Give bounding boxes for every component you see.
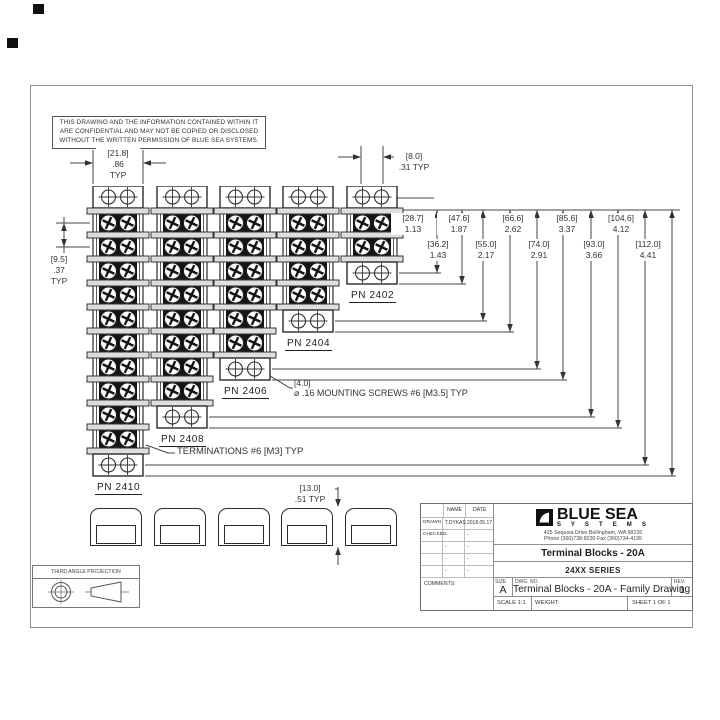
- dim-terminal-pitch: [9.5] .37 TYP: [42, 254, 76, 286]
- side-view-base: [287, 525, 327, 544]
- dim-in: 3.66: [572, 250, 616, 261]
- approval-cell: -: [443, 566, 465, 577]
- dim-in: 2.62: [491, 224, 535, 235]
- approval-cell: [421, 566, 443, 577]
- approval-cell: -: [465, 542, 493, 553]
- approval-cell: -: [465, 530, 493, 541]
- title-block: NAME DATE DRAWNT.DYKAS2018.05.17CHECKED-…: [420, 503, 693, 611]
- dim-ladder-label: [85.6]3.37: [545, 213, 589, 235]
- pn-label: PN 2404: [285, 338, 332, 351]
- approval-row: --: [421, 554, 493, 566]
- company-sub: S Y S T E M S: [557, 522, 650, 528]
- terminal-block-pn-2402: [340, 186, 404, 286]
- blue-sea-logo-icon: [536, 509, 553, 526]
- dim-mm: [36.2]: [416, 239, 460, 250]
- dim-ladder-label: [28.7]1.13: [391, 213, 435, 235]
- dim-ladder-label: [104.6]4.12: [599, 213, 643, 235]
- projection-label: THIRD ANGLE PROJECTION: [33, 566, 139, 579]
- size-value: A: [494, 584, 512, 596]
- dim-in: 1.87: [437, 224, 481, 235]
- pn-label: PN 2406: [222, 386, 269, 399]
- dim-mm: [85.6]: [545, 213, 589, 224]
- dim-mm: [104.6]: [599, 213, 643, 224]
- approval-cell: -: [443, 554, 465, 565]
- sheet-value: SHEET 1 OF 1: [628, 597, 692, 610]
- dim-mm: [47.6]: [437, 213, 481, 224]
- side-view-profile: [281, 508, 333, 546]
- pn-label: PN 2410: [95, 482, 142, 495]
- dim-in: 2.91: [517, 250, 561, 261]
- dim-ladder-label: [74.0]2.91: [517, 239, 561, 261]
- dim-block-width: [21.8] .86 TYP: [96, 148, 140, 180]
- dim-in: 1.13: [391, 224, 435, 235]
- weight-label: WEIGHT:: [532, 597, 628, 610]
- dwg-label: DWG. NO.: [515, 579, 539, 585]
- approval-cell: -: [443, 530, 465, 541]
- projection-box: THIRD ANGLE PROJECTION: [32, 565, 140, 608]
- side-view-base: [160, 525, 200, 544]
- company-phone: Phone (360)738-8230 Fax (360)734-4195: [494, 536, 692, 542]
- approval-row: --: [421, 566, 493, 578]
- note-mounting-dim: [4.0]: [294, 378, 468, 388]
- pn-label: PN 2402: [349, 290, 396, 303]
- approval-cell: -: [465, 566, 493, 577]
- dim-in: 1.43: [416, 250, 460, 261]
- dim-mm: [112.0]: [626, 239, 670, 250]
- rev-value: 1: [672, 584, 692, 596]
- pn-label: PN 2408: [159, 434, 206, 447]
- side-view-base: [224, 525, 264, 544]
- dim-mm: [66.6]: [491, 213, 535, 224]
- dim-mm: [93.0]: [572, 239, 616, 250]
- note-mounting-screws: [4.0] ⌀ .16 MOUNTING SCREWS #6 [M3.5] TY…: [294, 378, 468, 399]
- company-name: BLUE SEA: [557, 507, 650, 522]
- approval-cell: -: [465, 554, 493, 565]
- approval-row: --: [421, 542, 493, 554]
- approval-cell: 2018.05.17: [465, 518, 493, 529]
- dim-ladder-label: [55.0]2.17: [464, 239, 508, 261]
- projection-symbol: [33, 579, 137, 606]
- approval-cell: -: [443, 542, 465, 553]
- side-view-base: [351, 525, 391, 544]
- col-header-date: DATE: [466, 504, 493, 517]
- rev-label: REV.: [674, 579, 685, 585]
- dim-in: 4.12: [599, 224, 643, 235]
- side-view-base: [96, 525, 136, 544]
- side-view-profile: [218, 508, 270, 546]
- dim-ladder-label: [36.2]1.43: [416, 239, 460, 261]
- dim-mm: [74.0]: [517, 239, 561, 250]
- dim-mm: [55.0]: [464, 239, 508, 250]
- approval-rows: DRAWNT.DYKAS2018.05.17CHECKED--------: [421, 518, 493, 578]
- terminal-block-pn-2408: [150, 186, 214, 430]
- comments-label: COMMENTS:: [421, 578, 493, 587]
- scale-value: SCALE 1:1: [494, 597, 532, 610]
- approval-cell: [421, 542, 443, 553]
- col-header-name: NAME: [444, 504, 467, 517]
- size-label: SIZE: [495, 579, 506, 585]
- approval-row: DRAWNT.DYKAS2018.05.17: [421, 518, 493, 530]
- dim-mm: [28.7]: [391, 213, 435, 224]
- dim-ladder-label: [112.0]4.41: [626, 239, 670, 261]
- dwg-number: Terminal Blocks - 20A - Family Drawing: [513, 584, 671, 595]
- approval-cell: T.DYKAS: [443, 518, 465, 529]
- approval-cell: CHECKED: [421, 530, 443, 541]
- side-view-profile: [345, 508, 397, 546]
- terminal-block-pn-2410: [86, 186, 150, 478]
- terminal-block-pn-2406: [213, 186, 277, 382]
- note-terminations: TERMINATIONS #6 [M3] TYP: [177, 446, 303, 457]
- dim-screw-spacing: [8.0] .31 TYP: [394, 151, 434, 173]
- dim-in: 3.37: [545, 224, 589, 235]
- dim-in: 2.17: [464, 250, 508, 261]
- approval-cell: DRAWN: [421, 518, 443, 529]
- drawing-page: THIS DRAWING AND THE INFORMATION CONTAIN…: [0, 0, 720, 720]
- dim-ladder-label: [93.0]3.66: [572, 239, 616, 261]
- dim-ladder-label: [47.6]1.87: [437, 213, 481, 235]
- side-view-profile: [154, 508, 206, 546]
- product-title: Terminal Blocks - 20A: [494, 545, 692, 562]
- approval-cell: [421, 554, 443, 565]
- series-label: 24XX SERIES: [494, 562, 692, 578]
- dim-in: 4.41: [626, 250, 670, 261]
- approval-row: CHECKED--: [421, 530, 493, 542]
- side-view-profile: [90, 508, 142, 546]
- dim-ladder-label: [66.6]2.62: [491, 213, 535, 235]
- terminal-block-pn-2404: [276, 186, 340, 334]
- dim-block-height: [13.0] .51 TYP: [285, 483, 335, 505]
